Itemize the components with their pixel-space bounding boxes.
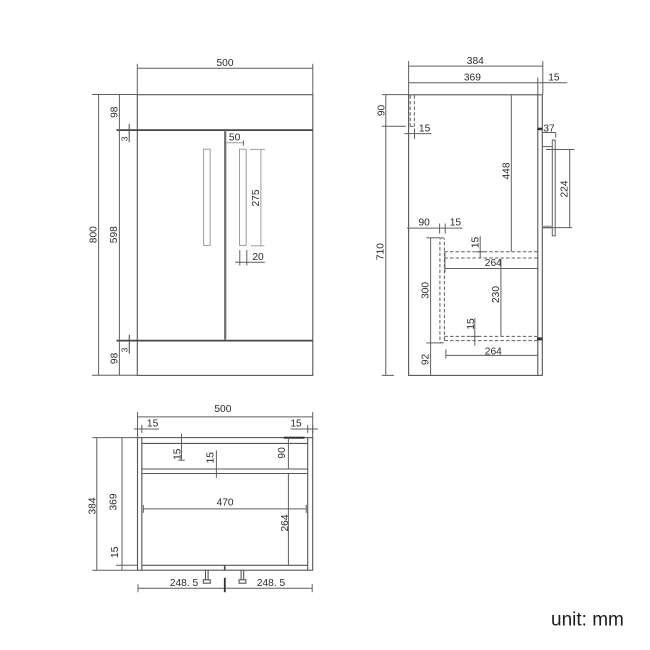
svg-text:15: 15: [110, 546, 121, 558]
svg-text:15: 15: [173, 448, 184, 460]
svg-text:448: 448: [502, 162, 513, 179]
svg-text:3: 3: [119, 347, 129, 352]
svg-text:264: 264: [485, 258, 502, 269]
svg-text:3: 3: [119, 136, 129, 141]
svg-text:unit: mm: unit: mm: [551, 610, 624, 631]
svg-text:275: 275: [251, 189, 262, 206]
svg-text:224: 224: [559, 180, 570, 197]
svg-text:15: 15: [470, 237, 481, 249]
svg-text:470: 470: [217, 498, 234, 509]
svg-text:15: 15: [548, 73, 560, 84]
svg-text:15: 15: [290, 418, 302, 429]
svg-text:598: 598: [109, 226, 120, 243]
svg-text:230: 230: [491, 286, 502, 303]
svg-text:384: 384: [87, 497, 98, 514]
svg-text:300: 300: [421, 282, 432, 299]
svg-text:90: 90: [376, 105, 387, 117]
svg-text:264: 264: [485, 346, 502, 357]
svg-text:92: 92: [421, 354, 432, 366]
svg-text:90: 90: [419, 218, 431, 229]
svg-text:15: 15: [466, 318, 477, 330]
svg-text:710: 710: [376, 243, 387, 260]
svg-text:15: 15: [419, 124, 431, 135]
svg-text:15: 15: [205, 452, 216, 464]
svg-text:50: 50: [229, 133, 241, 144]
svg-text:248. 5: 248. 5: [257, 578, 286, 589]
svg-text:248. 5: 248. 5: [170, 578, 199, 589]
svg-text:384: 384: [467, 56, 484, 67]
svg-text:98: 98: [109, 352, 120, 364]
svg-text:15: 15: [450, 218, 462, 229]
svg-text:369: 369: [109, 493, 120, 510]
svg-text:264: 264: [280, 514, 291, 531]
svg-text:90: 90: [277, 447, 288, 459]
svg-text:20: 20: [252, 252, 264, 263]
svg-text:98: 98: [110, 106, 121, 118]
svg-text:500: 500: [217, 58, 234, 69]
svg-text:800: 800: [88, 226, 99, 243]
svg-text:15: 15: [147, 418, 159, 429]
svg-text:37: 37: [543, 124, 555, 135]
svg-text:500: 500: [214, 404, 231, 415]
svg-text:369: 369: [464, 73, 481, 84]
